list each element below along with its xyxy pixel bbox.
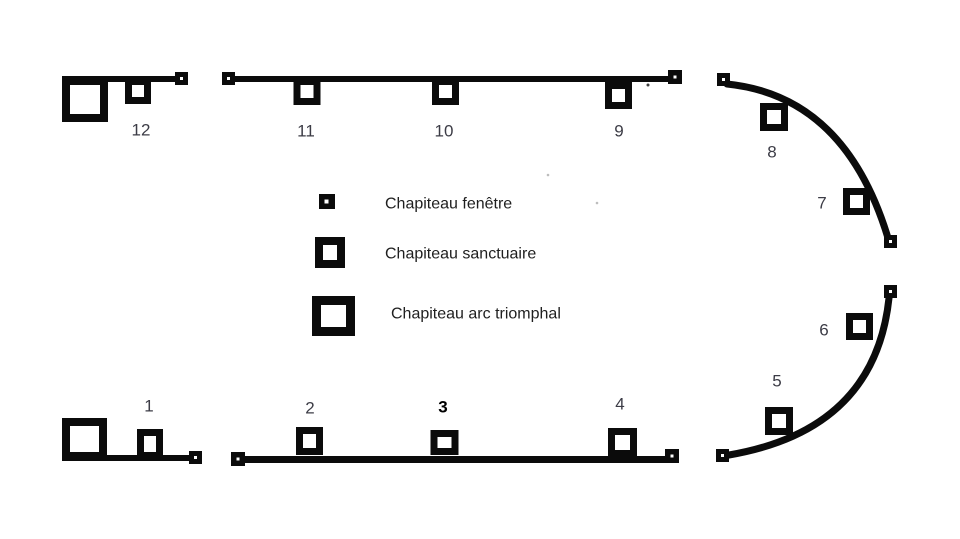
stray-speck	[547, 174, 550, 177]
legend-item-sanctuary-capital: Chapiteau sanctuaire	[319, 241, 536, 264]
southwest-wall-group	[62, 422, 202, 464]
apse-south-arc-group	[716, 285, 897, 462]
legend-item-label: Chapiteau arc triomphal	[391, 306, 561, 323]
legend-item-label: Chapiteau fenêtre	[385, 196, 512, 213]
window-capital-icon-dot	[325, 200, 329, 204]
plan-drawing: 1 2 3 4 5 6 7 8 9 10 11 12 Chapiteau fen…	[0, 0, 960, 539]
window-capital-dot	[721, 454, 724, 457]
capital-number-labels: 1 2 3 4 5 6 7 8 9 10 11 12	[132, 121, 829, 418]
window-capital-dot	[237, 458, 240, 461]
sanctuary-capital-square	[129, 82, 148, 101]
window-capital-dot	[722, 78, 725, 81]
window-capital-dot	[227, 77, 230, 80]
apse-arc-line	[729, 298, 889, 455]
capital-label-9: 9	[614, 122, 623, 141]
south-wall-group	[231, 431, 679, 467]
capital-label-1: 1	[144, 397, 153, 416]
sanctuary-capital-icon	[319, 241, 341, 264]
window-capital-dot	[671, 455, 674, 458]
capital-label-11: 11	[297, 122, 315, 141]
capital-label-6: 6	[819, 321, 828, 340]
capital-label-7: 7	[817, 194, 826, 213]
window-capital-dot	[674, 76, 677, 79]
stray-speck	[596, 202, 599, 205]
capital-label-2: 2	[305, 399, 314, 418]
wall-line	[245, 456, 668, 463]
triumphal-arch-capital-icon	[317, 301, 351, 332]
legend-item-triumphal-arch-capital: Chapiteau arc triomphal	[317, 301, 561, 332]
sanctuary-capital-square	[297, 82, 317, 102]
sanctuary-capital-square	[300, 431, 320, 452]
triumphal-arch-capital-square	[66, 422, 103, 456]
sanctuary-capital-square	[141, 433, 160, 456]
capital-label-4: 4	[615, 395, 624, 414]
sanctuary-capital-square	[847, 192, 867, 212]
capital-label-10: 10	[435, 122, 454, 141]
legend-item-window-capital: Chapiteau fenêtre	[319, 194, 512, 213]
capital-label-8: 8	[767, 143, 776, 162]
sanctuary-capital-square	[769, 411, 790, 432]
capital-label-12: 12	[132, 121, 151, 140]
northwest-wall-group	[62, 72, 188, 118]
sanctuary-capital-square	[850, 317, 870, 337]
legend-item-label: Chapiteau sanctuaire	[385, 246, 536, 263]
window-capital-dot	[889, 240, 892, 243]
sanctuary-capital-square	[764, 107, 785, 128]
sanctuary-capital-square	[609, 86, 629, 106]
sanctuary-capital-square	[436, 82, 456, 102]
stray-mark	[647, 84, 650, 87]
church-capitals-plan: 1 2 3 4 5 6 7 8 9 10 11 12 Chapiteau fen…	[0, 0, 960, 539]
window-capital-dot	[194, 456, 197, 459]
sanctuary-capital-square	[434, 434, 455, 452]
apse-north-arc-group	[717, 73, 897, 248]
capital-label-3: 3	[438, 398, 447, 417]
sanctuary-capital-square	[612, 432, 634, 454]
window-capital-dot	[180, 77, 183, 80]
triumphal-arch-capital-square	[66, 81, 104, 118]
north-wall-group	[222, 70, 682, 106]
window-capital-dot	[889, 290, 892, 293]
legend: Chapiteau fenêtre Chapiteau sanctuaire C…	[317, 194, 561, 332]
capital-label-5: 5	[772, 372, 781, 391]
